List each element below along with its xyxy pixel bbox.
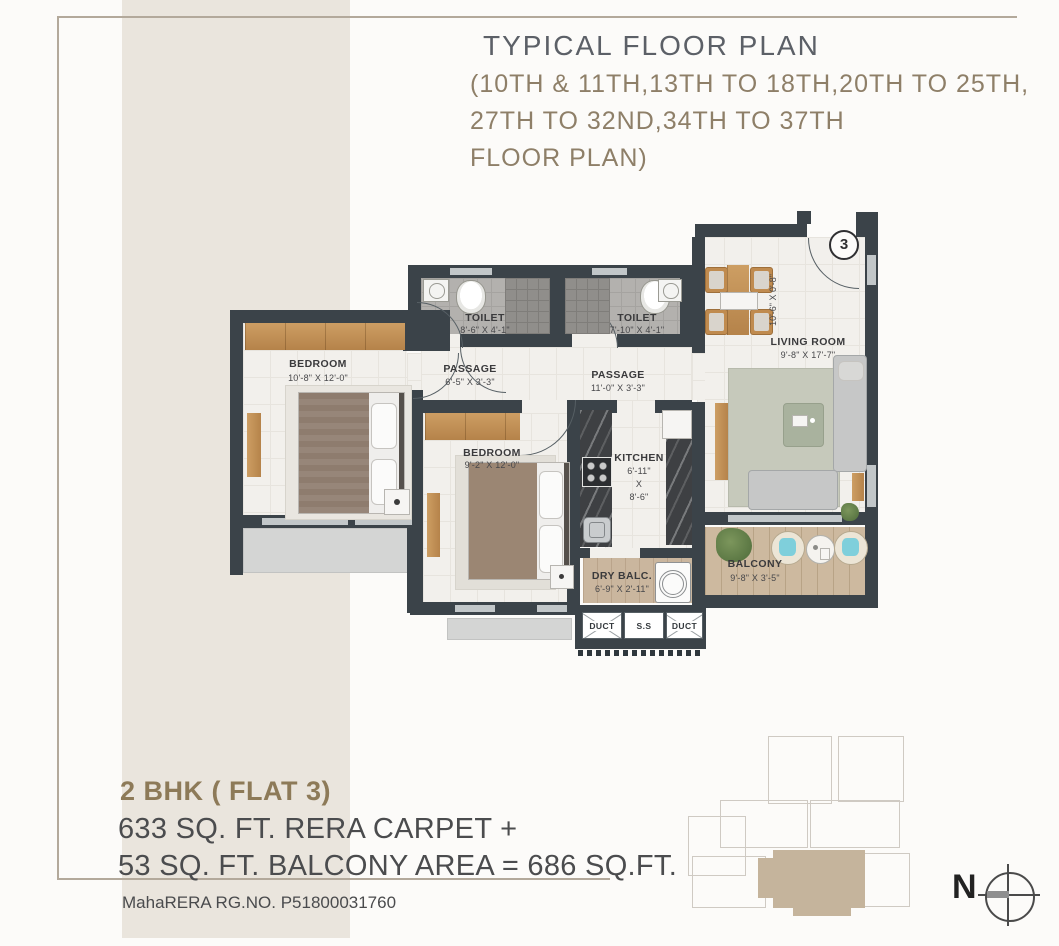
sofa xyxy=(833,355,867,472)
dining-chair xyxy=(705,309,728,335)
wall xyxy=(230,310,243,575)
page-title: TYPICAL FLOOR PLAN xyxy=(483,30,820,62)
window xyxy=(537,605,567,612)
passage1-dim: 6'-5" X 3'-3" xyxy=(445,377,494,387)
flat-number-badge: 3 xyxy=(829,230,859,260)
washbasin xyxy=(658,279,682,302)
balcony-table xyxy=(806,535,835,564)
lamp-icon xyxy=(559,574,564,579)
wall xyxy=(692,237,705,353)
pillow xyxy=(371,403,397,449)
area-line-1: 633 SQ. FT. RERA CARPET + xyxy=(118,813,517,846)
wardrobe xyxy=(245,323,405,350)
bedroom1-ledge xyxy=(243,528,412,573)
decor-item xyxy=(820,548,830,560)
duct-cell: DUCT xyxy=(582,612,622,639)
sofa xyxy=(748,470,838,510)
fridge-slot xyxy=(662,410,692,439)
foyer-dimension: 10'-6" X 0'-8" xyxy=(768,274,778,326)
window xyxy=(450,268,492,275)
floor-plan: DUCT S.S DUCT 10'-6" X 0'-8" 3 xyxy=(228,198,883,663)
sliding-door-window xyxy=(728,515,842,522)
toilet2-dim: 7'-10" X 4'-1" xyxy=(610,325,665,335)
side-table xyxy=(550,565,574,589)
subtitle-line-2: 27TH TO 32ND,34TH TO 37TH xyxy=(470,107,845,136)
key-plan-highlighted-flat xyxy=(793,866,851,916)
compass-needle xyxy=(987,891,1009,898)
headboard xyxy=(564,463,569,579)
subtitle-line-3: FLOOR PLAN) xyxy=(470,144,648,173)
dining-chair xyxy=(705,267,728,293)
passage2-dim: 11'-0" X 3'-3" xyxy=(591,383,645,393)
balcony-dim: 9'-8" X 3'-5" xyxy=(730,573,779,583)
serrated-edge xyxy=(578,650,704,656)
kitchen-dim-3: 8'-6" xyxy=(614,491,663,504)
balcony-chair xyxy=(834,531,868,565)
key-plan-block xyxy=(810,800,900,848)
tray xyxy=(792,415,808,427)
toilet1-dim: 8'-6" X 4'-1" xyxy=(460,325,509,335)
frame-left-line xyxy=(57,16,59,880)
bedroom2-ledge xyxy=(447,618,572,640)
decor-dot xyxy=(810,418,815,423)
duct-label: DUCT xyxy=(670,621,699,631)
north-label: N xyxy=(952,868,977,907)
nightstand xyxy=(384,489,410,515)
bedroom1-dim: 10'-8" X 12'-0" xyxy=(288,373,348,383)
compass: N xyxy=(940,860,1052,932)
sink-icon xyxy=(583,517,611,543)
ss-cell: S.S xyxy=(624,612,664,639)
kitchen-dim-2: X xyxy=(614,478,663,491)
shower-area xyxy=(505,278,550,334)
shower-area xyxy=(565,278,610,334)
frame-top-line xyxy=(57,16,1017,18)
washing-machine-icon xyxy=(655,562,691,603)
window xyxy=(867,465,876,507)
rera-registration: MahaRERA RG.NO. P51800031760 xyxy=(122,893,396,913)
subtitle-line-1: (10TH & 11TH,13TH TO 18TH,20TH TO 25TH, xyxy=(470,70,1029,99)
washbasin xyxy=(423,279,449,302)
stove-icon xyxy=(582,457,612,487)
key-plan-block xyxy=(768,736,832,804)
bed xyxy=(468,462,570,580)
wall xyxy=(692,402,705,606)
bed-blanket xyxy=(469,463,537,579)
cushion xyxy=(838,361,864,381)
bedroom2-dim: 9'-2" X 12'-0" xyxy=(465,460,520,470)
wall xyxy=(695,224,807,237)
pillow xyxy=(539,471,563,519)
duct-label: DUCT xyxy=(587,621,616,631)
decor-dot xyxy=(813,545,818,550)
living-dim: 9'-8" X 17'-7" xyxy=(781,350,836,360)
bench xyxy=(427,493,440,557)
dry-balcony-dim: 6'-9" X 2'-11" xyxy=(595,584,649,594)
dry-balcony-door-opening xyxy=(590,548,640,558)
window xyxy=(592,268,627,275)
side-table xyxy=(852,473,864,501)
coffee-table xyxy=(783,403,824,447)
kitchen-label: KITCHEN xyxy=(614,452,663,465)
tv-unit xyxy=(715,403,728,480)
wall xyxy=(797,211,811,224)
bench xyxy=(247,413,261,477)
window xyxy=(867,255,876,285)
window xyxy=(455,605,495,612)
wall xyxy=(692,595,878,608)
table-runner xyxy=(720,292,758,310)
key-plan-block xyxy=(838,736,904,802)
duct-cell: DUCT xyxy=(666,612,703,639)
wardrobe xyxy=(425,413,520,440)
brochure-page: TYPICAL FLOOR PLAN (10TH & 11TH,13TH TO … xyxy=(0,0,1059,946)
bed-blanket xyxy=(299,393,369,513)
wall xyxy=(230,310,420,323)
unit-type-heading: 2 BHK ( FLAT 3) xyxy=(120,776,331,807)
ss-label: S.S xyxy=(635,621,654,631)
kitchen-counter xyxy=(666,438,692,545)
key-plan xyxy=(680,728,910,910)
lamp-icon xyxy=(394,499,400,505)
area-line-2: 53 SQ. FT. BALCONY AREA = 686 SQ.FT. xyxy=(118,850,677,883)
passage-living-opening xyxy=(692,353,705,400)
kitchen-dim-1: 6'-11" xyxy=(614,465,663,478)
key-plan-block xyxy=(692,856,766,908)
key-plan-highlighted-flat xyxy=(758,858,788,898)
plant-icon xyxy=(841,503,859,521)
